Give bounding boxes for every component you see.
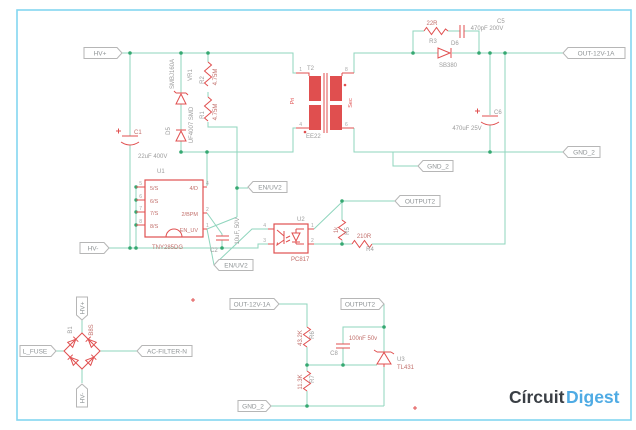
net-label-gnd2-mid: GND_2	[418, 161, 453, 172]
svg-text:TNY285DG: TNY285DG	[152, 245, 183, 251]
svg-text:4: 4	[263, 223, 266, 229]
svg-text:5/S: 5/S	[150, 186, 159, 192]
svg-text:D6: D6	[451, 41, 459, 47]
svg-text:43.2K: 43.2K	[298, 330, 304, 346]
svg-text:R7: R7	[310, 375, 316, 383]
svg-text:OUT-12V-1A: OUT-12V-1A	[234, 302, 272, 309]
net-label-gnd2-bottom: GND_2	[238, 401, 271, 412]
svg-text:B1: B1	[68, 326, 74, 334]
resistor-r2: R2 4.75M	[200, 62, 219, 86]
svg-text:470uF 25V: 470uF 25V	[452, 126, 481, 132]
svg-text:R5: R5	[345, 227, 351, 235]
svg-text:AC-FILTER-N: AC-FILTER-N	[147, 349, 187, 356]
resistor-r4: 210R R4	[352, 234, 374, 253]
svg-text:R1: R1	[200, 111, 206, 119]
svg-text:6: 6	[139, 194, 142, 200]
svg-text:L_FUSE: L_FUSE	[23, 349, 48, 356]
svg-text:C5: C5	[497, 19, 505, 25]
capacitor-c6: C6 470uF 25V	[452, 109, 502, 133]
svg-text:GND_2: GND_2	[573, 150, 595, 157]
svg-text:HV-: HV-	[80, 393, 87, 404]
svg-text:5: 5	[139, 181, 142, 187]
svg-text:10uF, 50V: 10uF, 50V	[235, 217, 241, 244]
svg-text:U2: U2	[297, 217, 305, 223]
svg-text:2/BPM: 2/BPM	[181, 212, 198, 218]
svg-text:1: 1	[311, 223, 314, 229]
svg-text:4: 4	[299, 122, 302, 128]
page-border	[17, 10, 631, 420]
svg-text:210R: 210R	[357, 234, 372, 240]
svg-text:Pri: Pri	[290, 98, 296, 105]
logo-digest: Digest	[566, 387, 620, 407]
svg-text:T2: T2	[307, 66, 315, 72]
svg-text:OUTPUT2: OUTPUT2	[405, 199, 436, 206]
svg-text:8/S: 8/S	[150, 224, 159, 230]
svg-text:B8S: B8S	[89, 324, 95, 335]
svg-text:GND_2: GND_2	[427, 164, 449, 171]
resistor-r7: 11.3K R7	[298, 371, 316, 391]
diode-d6: D6 SB380	[438, 41, 459, 69]
svg-text:1k: 1k	[334, 226, 340, 233]
shunt-regulator-u3-tl431: U3 TL431	[374, 350, 415, 371]
svg-text:4.75M: 4.75M	[213, 104, 219, 121]
svg-text:8: 8	[345, 67, 348, 73]
svg-text:1: 1	[206, 223, 209, 229]
transformer-t2: T2 1 8 4 6 Pri Sec EE22	[290, 66, 354, 140]
svg-text:R4: R4	[366, 247, 374, 253]
resistor-r5: 1k R5	[334, 220, 351, 240]
svg-text:6: 6	[345, 122, 348, 128]
svg-text:C6: C6	[494, 110, 502, 116]
svg-text:4/D: 4/D	[189, 186, 198, 192]
resistor-r3: 22R R3	[424, 21, 448, 45]
svg-text:Sec: Sec	[348, 98, 354, 108]
svg-text:EN/UV2: EN/UV2	[258, 185, 282, 192]
schematic-svg: C1 22uF 400V SMBJ160A VR1 D5 UF4007 SMD …	[0, 0, 636, 430]
svg-text:8: 8	[139, 219, 142, 225]
svg-text:11.3K: 11.3K	[298, 374, 304, 389]
svg-text:SB380: SB380	[439, 63, 458, 69]
net-label-output2-bottom: OUTPUT2	[341, 299, 384, 310]
schematic-canvas: C1 22uF 400V SMBJ160A VR1 D5 UF4007 SMD …	[0, 0, 636, 430]
svg-text:UF4007 SMD: UF4007 SMD	[189, 106, 195, 143]
net-label-hv-plus-top: HV+	[84, 48, 122, 59]
svg-text:R2: R2	[200, 76, 206, 84]
tvs-diode-vr1: SMBJ160A VR1	[170, 59, 194, 104]
svg-text:HV-: HV-	[88, 246, 99, 253]
svg-text:C8: C8	[330, 351, 338, 357]
net-label-en-uv2-top: EN/UV2	[248, 182, 287, 193]
svg-text:U1: U1	[157, 169, 165, 175]
svg-text:2: 2	[206, 207, 209, 213]
svg-text:VR1: VR1	[188, 69, 194, 81]
svg-text:EN/UV2: EN/UV2	[224, 263, 248, 270]
svg-text:7/S: 7/S	[150, 211, 159, 217]
net-label-hv-minus-left: HV-	[80, 243, 109, 254]
svg-text:100nF 50v: 100nF 50v	[349, 336, 377, 342]
svg-text:3: 3	[263, 238, 266, 244]
svg-text:SMBJ160A: SMBJ160A	[170, 59, 176, 89]
svg-text:OUT-12V-1A: OUT-12V-1A	[578, 51, 616, 58]
svg-text:4.75M: 4.75M	[213, 69, 219, 86]
net-label-hv-plus-vertical: HV+	[77, 297, 88, 320]
svg-text:OUTPUT2: OUTPUT2	[345, 302, 376, 309]
capacitor-c5: C5 470pF 200V	[460, 19, 505, 38]
svg-text:HV+: HV+	[80, 301, 87, 314]
logo-circuit: Círcuit	[509, 387, 565, 407]
capacitor-c1: C1 22uF 400V	[116, 129, 167, 161]
svg-text:4: 4	[206, 181, 209, 187]
net-labels: HV+ HV- EN/UV2 EN/UV2 GND_2 GND_2 GND_2	[20, 48, 625, 412]
svg-text:U3: U3	[397, 357, 405, 363]
net-label-ac-filter-n: AC-FILTER-N	[137, 346, 192, 357]
svg-text:HV+: HV+	[94, 51, 107, 58]
svg-text:22R: 22R	[426, 21, 438, 27]
svg-text:GND_2: GND_2	[242, 404, 264, 411]
svg-text:TL431: TL431	[397, 365, 415, 371]
svg-text:470pF 200V: 470pF 200V	[471, 26, 504, 32]
ic-u1-tny285: U1 5/S 6/S 7/S 8/S 4/D 2/BPM EN_UV 5 6 7…	[136, 169, 209, 251]
svg-text:D5: D5	[166, 127, 172, 135]
net-label-gnd2-right: GND_2	[563, 147, 600, 158]
net-label-l-fuse: L_FUSE	[20, 346, 56, 357]
resistor-r6: 43.2K R6	[298, 327, 316, 347]
svg-text:6/S: 6/S	[150, 199, 159, 205]
svg-text:C2: C2	[210, 248, 218, 254]
svg-text:PC817: PC817	[291, 257, 310, 263]
net-label-output2-top: OUTPUT2	[395, 196, 440, 207]
resistor-r1: R1 4.75M	[200, 97, 219, 121]
net-label-en-uv2-bottom: EN/UV2	[214, 260, 253, 271]
svg-text:C1: C1	[134, 130, 142, 136]
net-label-out12v-bottom: OUT-12V-1A	[230, 299, 279, 310]
svg-text:EE22: EE22	[306, 134, 321, 140]
svg-text:1: 1	[299, 67, 302, 73]
svg-text:R3: R3	[429, 39, 437, 45]
circuitdigest-logo: Círcuit Digest	[509, 387, 620, 407]
optocoupler-u2-pc817: U2 PC817 4 3 1 2	[263, 217, 314, 263]
svg-text:7: 7	[139, 206, 142, 212]
svg-text:EN_UV: EN_UV	[180, 228, 199, 234]
svg-text:R6: R6	[310, 331, 316, 339]
capacitor-c8: C8 100nF 50v	[330, 336, 377, 357]
net-label-hv-minus-vertical: HV-	[77, 384, 88, 407]
net-label-out12v-top: OUT-12V-1A	[563, 48, 625, 59]
svg-text:22uF 400V: 22uF 400V	[138, 154, 167, 160]
svg-text:2: 2	[311, 238, 314, 244]
